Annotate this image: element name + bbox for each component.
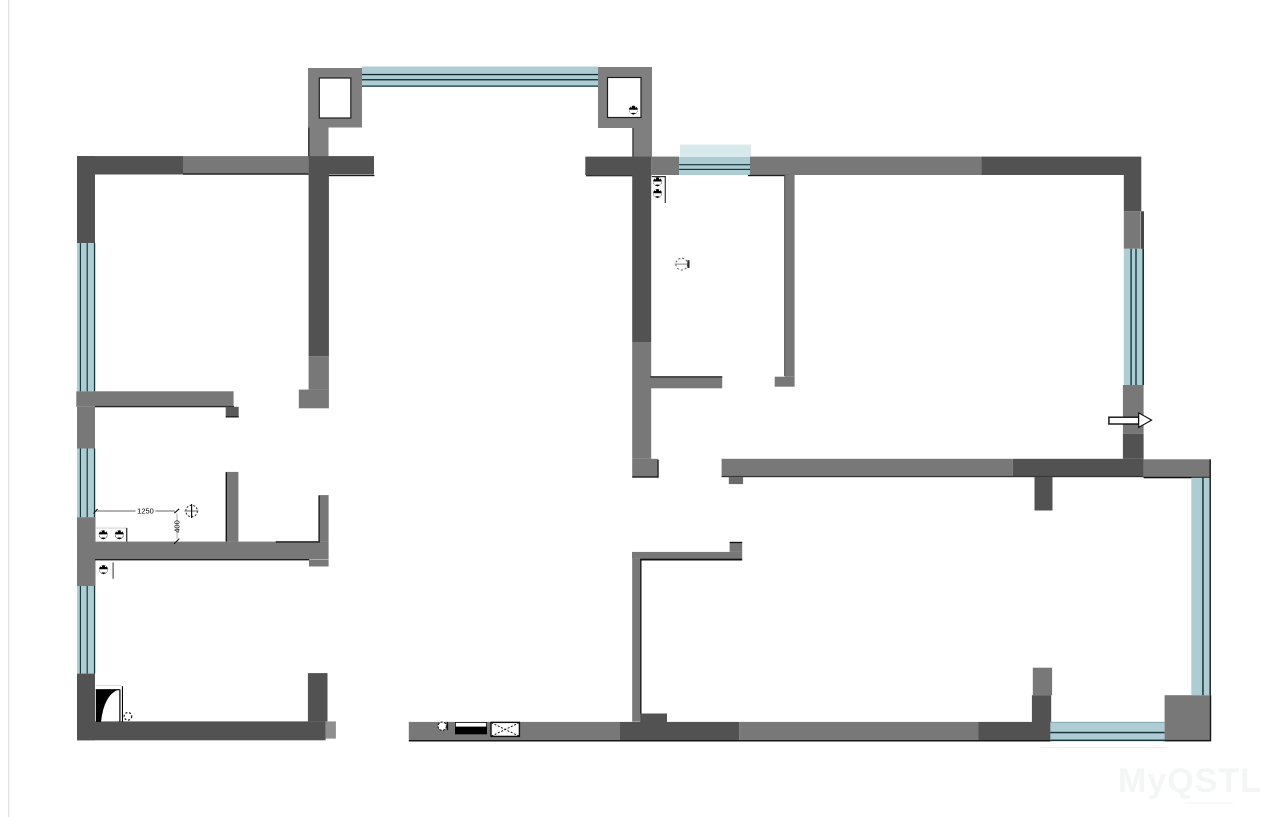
svg-text:400: 400	[173, 520, 182, 533]
svg-text:————: ————	[1185, 795, 1233, 809]
svg-text:1250: 1250	[137, 507, 154, 516]
